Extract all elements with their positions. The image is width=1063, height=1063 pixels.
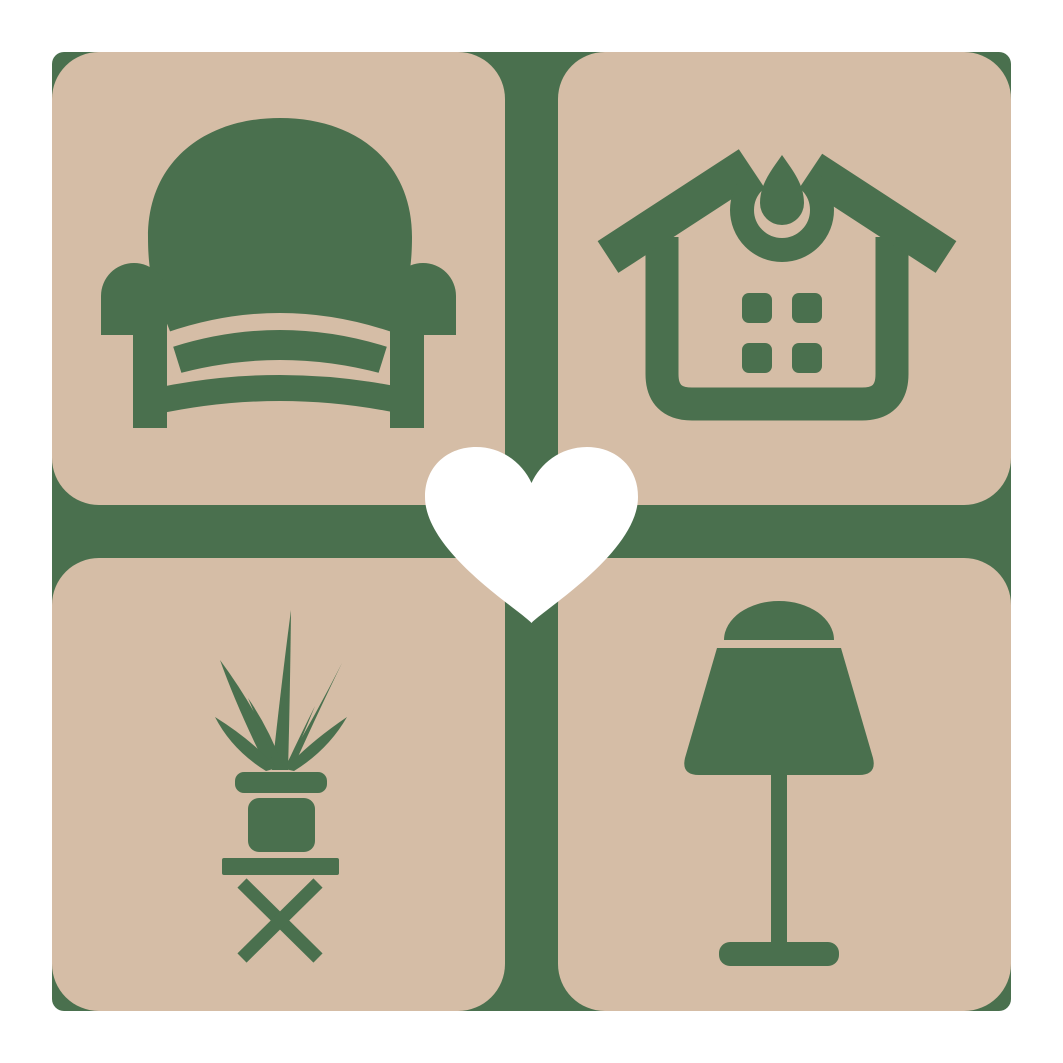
armchair-icon (52, 52, 505, 505)
table-lamp-icon (558, 558, 1011, 1011)
tile-house (558, 52, 1011, 505)
house-icon (558, 52, 1011, 505)
heart-icon (425, 447, 638, 623)
logo-canvas (0, 0, 1063, 1063)
tile-lamp (558, 558, 1011, 1011)
tile-plant (52, 558, 505, 1011)
tile-armchair (52, 52, 505, 505)
potted-plant-icon (52, 558, 505, 1011)
